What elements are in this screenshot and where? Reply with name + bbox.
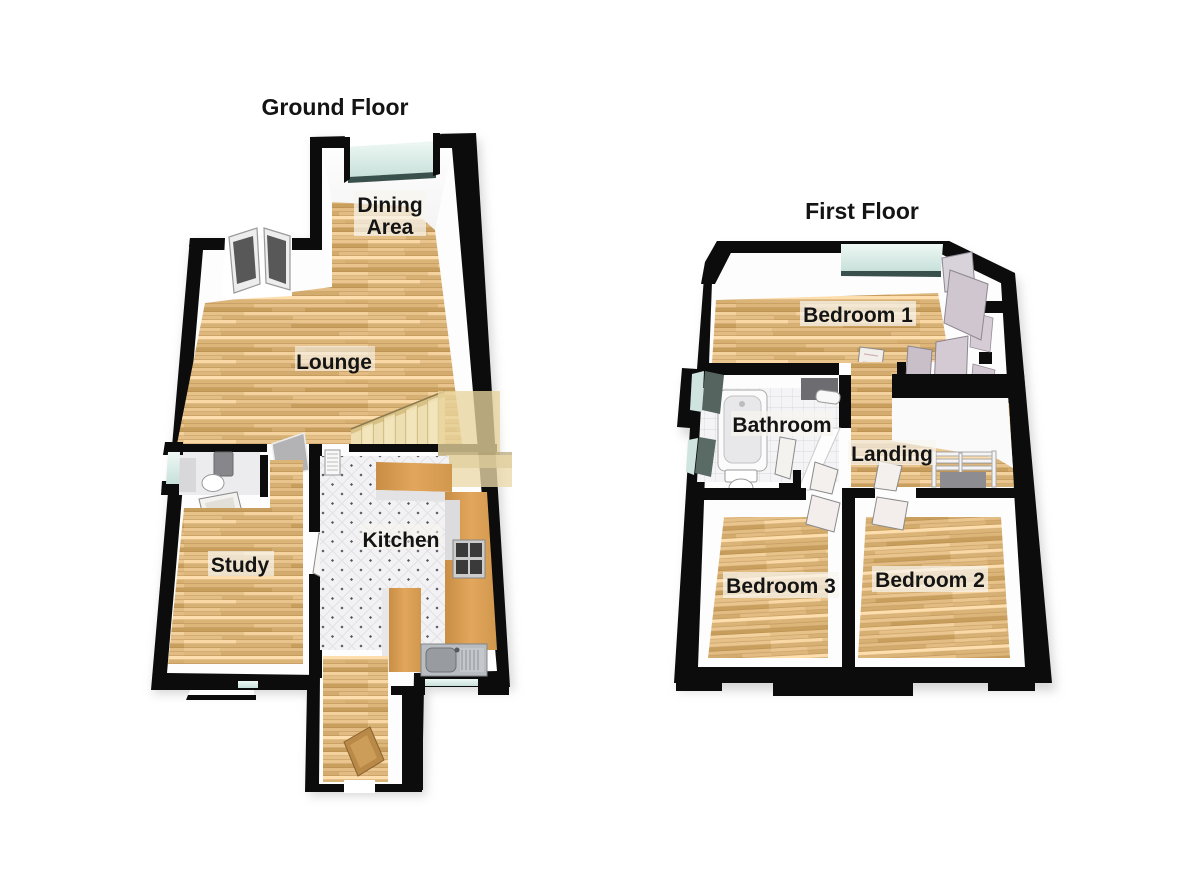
svg-text:Bedroom 2: Bedroom 2 <box>875 569 985 592</box>
svg-text:First Floor: First Floor <box>805 198 919 224</box>
svg-text:Ground Floor: Ground Floor <box>262 94 409 120</box>
svg-text:Kitchen: Kitchen <box>362 529 439 552</box>
svg-text:Bedroom 3: Bedroom 3 <box>726 575 836 598</box>
svg-text:Bedroom 1: Bedroom 1 <box>803 304 913 327</box>
svg-text:Dining: Dining <box>357 194 422 217</box>
svg-text:Study: Study <box>211 554 270 577</box>
svg-text:Area: Area <box>367 216 414 239</box>
svg-text:Bathroom: Bathroom <box>732 414 831 437</box>
svg-text:Lounge: Lounge <box>296 351 372 374</box>
svg-text:Landing: Landing <box>851 443 933 466</box>
